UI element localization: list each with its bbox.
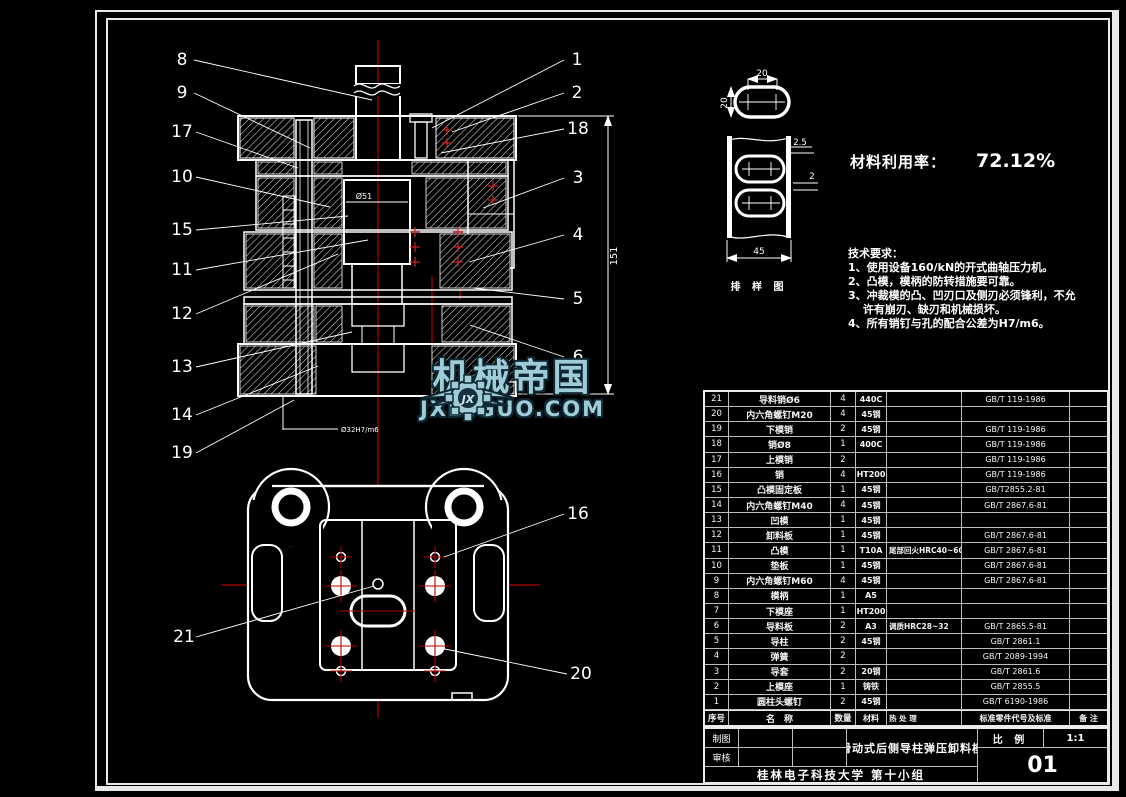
callout-number-19: 19 [171, 443, 193, 463]
check-name-cell [739, 748, 793, 767]
bom-cell: 45钢 [856, 634, 887, 648]
bom-cell: 21 [705, 392, 729, 406]
bom-cell: 45钢 [856, 513, 887, 527]
callout-number-16: 16 [567, 504, 589, 524]
bom-row: 16销4HT200GB/T 119-1986 [705, 468, 1107, 483]
bom-cell [962, 407, 1070, 421]
bom-cell [1070, 559, 1107, 573]
bom-cell [887, 680, 962, 694]
bom-cell: 45钢 [856, 407, 887, 421]
bom-cell: 14 [705, 498, 729, 512]
bom-cell [1070, 513, 1107, 527]
bom-cell: 凸模固定板 [729, 483, 831, 497]
bom-cell: 4 [831, 498, 856, 512]
watermark-monogram: JX [460, 393, 475, 406]
draw-date-cell [793, 729, 847, 748]
bom-cell [1070, 483, 1107, 497]
callout-number-12: 12 [171, 304, 193, 324]
scale-value: 1:1 [1044, 729, 1107, 748]
bom-cell: GB/T 2867.6-81 [962, 528, 1070, 542]
bom-cell [887, 453, 962, 467]
bom-cell [1070, 604, 1107, 618]
sheet-number: 01 [978, 748, 1107, 782]
bom-cell [1070, 437, 1107, 451]
bom-cell [1070, 407, 1107, 421]
bom-cell: 45钢 [856, 498, 887, 512]
bom-cell: 12 [705, 528, 729, 542]
bom-cell: 导料板 [729, 619, 831, 633]
callout-number-4: 4 [573, 225, 584, 245]
dim-punch-diameter: Ø51 [356, 191, 372, 201]
bom-cell: 2 [831, 649, 856, 663]
title-block: 制图 滑动式后侧导柱弹压卸料模 比 例 1:1 审核 01 桂林电子科技大学 第… [703, 727, 1109, 784]
bom-cell [1070, 680, 1107, 694]
bom-cell [1070, 574, 1107, 588]
bom-cell: 上模销 [729, 453, 831, 467]
bom-cell [887, 528, 962, 542]
bom-cell: 下模销 [729, 422, 831, 436]
bom-cell: 2 [831, 695, 856, 709]
strip-caption: 排 样 图 [731, 280, 788, 293]
bom-cell: 45钢 [856, 574, 887, 588]
callout-number-9: 9 [177, 83, 188, 103]
bom-cell: 2 [831, 422, 856, 436]
draw-name-cell [739, 729, 793, 748]
bom-cell [856, 453, 887, 467]
bom-header-cell: 备 注 [1070, 711, 1107, 725]
watermark: JX 机械帝国 JXDIGUO.COM [420, 358, 605, 421]
bom-cell: 2 [705, 680, 729, 694]
bom-cell: 下模座 [729, 604, 831, 618]
bom-cell: 3 [705, 665, 729, 679]
bom-cell [1070, 453, 1107, 467]
tech-line: 3、冲裁模的凸、凹刃口及侧刃必须锋利，不允 [848, 289, 1116, 303]
bom-row: 7下模座1HT200 [705, 604, 1107, 619]
bom-cell: 13 [705, 513, 729, 527]
bom-cell [962, 513, 1070, 527]
bom-header-cell: 热 处 理 [887, 711, 962, 725]
bom-row: 21导料销Ø64440CGB/T 119-1986 [705, 392, 1107, 407]
bom-row: 20内六角螺钉M20445钢 [705, 407, 1107, 422]
bom-cell: HT200 [856, 604, 887, 618]
bom-cell: GB/T 119-1986 [962, 392, 1070, 406]
callout-number-3: 3 [573, 168, 584, 188]
bom-cell [887, 407, 962, 421]
bom-row: 5导柱245钢GB/T 2861.1 [705, 634, 1107, 649]
callout-number-13: 13 [171, 357, 193, 377]
bom-cell: 20 [705, 407, 729, 421]
callout-number-2: 2 [572, 83, 583, 103]
bom-cell: GB/T 2861.6 [962, 665, 1070, 679]
drawing-title: 滑动式后侧导柱弹压卸料模 [847, 729, 978, 767]
bom-cell [887, 437, 962, 451]
bom-cell: GB/T2855.2-81 [962, 483, 1070, 497]
bom-cell: GB/T 2865.5-81 [962, 619, 1070, 633]
bom-cell: 4 [831, 407, 856, 421]
bom-row: 6导料板2A3调质HRC28~32GB/T 2865.5-81 [705, 619, 1107, 634]
bom-cell: 4 [831, 468, 856, 482]
bom-cell [887, 468, 962, 482]
bom-cell [887, 574, 962, 588]
bom-cell: 45钢 [856, 422, 887, 436]
bom-cell [1070, 695, 1107, 709]
dim-height-151: 151 [609, 246, 620, 265]
bom-cell [1070, 649, 1107, 663]
strip-layout [727, 79, 818, 262]
bom-cell [1070, 665, 1107, 679]
material-utilization-value: 72.12% [976, 150, 1055, 172]
scale-label: 比 例 [978, 729, 1044, 748]
callout-number-5: 5 [573, 289, 584, 309]
bom-cell: 卸料板 [729, 528, 831, 542]
bom-cell: 1 [831, 680, 856, 694]
callout-number-15: 15 [171, 220, 193, 240]
callout-number-14: 14 [171, 405, 193, 425]
callout-number-21: 21 [173, 627, 195, 647]
bom-cell: 20钢 [856, 665, 887, 679]
bom-cell: 16 [705, 468, 729, 482]
bom-header-cell: 数量 [831, 711, 856, 725]
bom-cell: GB/T 2867.6-81 [962, 574, 1070, 588]
bom-cell: GB/T 6190-1986 [962, 695, 1070, 709]
bom-header-cell: 标准零件代号及标准 [962, 711, 1070, 725]
bom-cell: 4 [705, 649, 729, 663]
bom-cell: 45钢 [856, 695, 887, 709]
bom-cell: 18 [705, 437, 729, 451]
bom-cell: 1 [831, 528, 856, 542]
tech-line: 4、所有销钉与孔的配合公差为H7/m6。 [848, 317, 1116, 331]
bom-cell [1070, 619, 1107, 633]
check-date-cell [793, 748, 847, 767]
bom-cell: 2 [831, 453, 856, 467]
bom-cell: 1 [831, 589, 856, 603]
bom-cell: 1 [831, 543, 856, 557]
bom-cell [1070, 528, 1107, 542]
bom-cell: 19 [705, 422, 729, 436]
bom-header-row: 序号名 称数量材料热 处 理标准零件代号及标准备 注 [705, 710, 1107, 725]
bom-cell [1070, 392, 1107, 406]
bom-header-cell: 名 称 [729, 711, 831, 725]
bom-cell: 440C [856, 392, 887, 406]
cad-drawing-page: 151 Ø51 Ø32H7/m6 [0, 0, 1126, 797]
bom-cell: 45钢 [856, 528, 887, 542]
bom-cell [1070, 634, 1107, 648]
bom-cell [887, 498, 962, 512]
check-label: 审核 [705, 748, 739, 767]
bom-header-cell: 序号 [705, 711, 729, 725]
bom-cell [887, 422, 962, 436]
callout-number-18: 18 [567, 119, 589, 139]
draw-label: 制图 [705, 729, 739, 748]
bom-cell: 导料销Ø6 [729, 392, 831, 406]
tech-line: 2、凸模，模柄的防转措施要可靠。 [848, 275, 1116, 289]
bom-row: 14内六角螺钉M40445钢GB/T 2867.6-81 [705, 498, 1107, 513]
bom-cell: GB/T 2855.5 [962, 680, 1070, 694]
bom-cell: 11 [705, 543, 729, 557]
bom-cell: 内六角螺钉M40 [729, 498, 831, 512]
bom-cell [887, 392, 962, 406]
bom-row: 17上模销2GB/T 119-1986 [705, 453, 1107, 468]
bom-cell [887, 634, 962, 648]
bom-cell: 6 [705, 619, 729, 633]
bom-cell [1070, 468, 1107, 482]
bom-cell: 2 [831, 619, 856, 633]
bom-cell: 垫板 [729, 559, 831, 573]
bom-cell: GB/T 119-1986 [962, 468, 1070, 482]
bom-cell: 1 [831, 483, 856, 497]
bom-cell: 1 [705, 695, 729, 709]
bom-cell [856, 649, 887, 663]
bom-row: 9内六角螺钉M60445钢GB/T 2867.6-81 [705, 574, 1107, 589]
bom-cell: GB/T 2867.6-81 [962, 543, 1070, 557]
bom-cell: A5 [856, 589, 887, 603]
bom-row: 19下模销245钢GB/T 119-1986 [705, 422, 1107, 437]
bom-cell: 45钢 [856, 559, 887, 573]
bom-cell: 4 [831, 574, 856, 588]
bom-table: 21导料销Ø64440CGB/T 119-198620内六角螺钉M20445钢1… [703, 390, 1109, 727]
bom-row: 11凸模1T10A尾部回火HRC40~60GB/T 2867.6-81 [705, 543, 1107, 558]
strip-dim-width: 45 [753, 247, 764, 257]
bom-row: 13凹模145钢 [705, 513, 1107, 528]
bom-cell: 销Ø8 [729, 437, 831, 451]
bom-cell: GB/T 119-1986 [962, 437, 1070, 451]
bom-cell: 17 [705, 453, 729, 467]
strip-dim-web: 2 [809, 172, 814, 182]
bom-cell: 9 [705, 574, 729, 588]
bom-cell: HT200 [856, 468, 887, 482]
bom-row: 2上模座1铸铁GB/T 2855.5 [705, 680, 1107, 695]
bom-cell: GB/T 2089-1994 [962, 649, 1070, 663]
bom-cell: 弹簧 [729, 649, 831, 663]
callout-number-1: 1 [572, 50, 583, 70]
bom-cell: 销 [729, 468, 831, 482]
bom-cell: 1 [831, 604, 856, 618]
bom-cell: 内六角螺钉M60 [729, 574, 831, 588]
bom-cell [887, 604, 962, 618]
bom-cell: 2 [831, 634, 856, 648]
bom-cell: 导柱 [729, 634, 831, 648]
bom-cell: GB/T 119-1986 [962, 453, 1070, 467]
bom-cell: 1 [831, 513, 856, 527]
bom-cell: A3 [856, 619, 887, 633]
bom-cell [1070, 589, 1107, 603]
bom-header-cell: 材料 [856, 711, 887, 725]
bom-row: 18销Ø81400CGB/T 119-1986 [705, 437, 1107, 452]
bom-cell [887, 649, 962, 663]
callout-number-10: 10 [171, 167, 193, 187]
bom-cell: 上模座 [729, 680, 831, 694]
bom-cell: 调质HRC28~32 [887, 619, 962, 633]
bom-cell: 1 [831, 437, 856, 451]
bom-cell: GB/T 2867.6-81 [962, 498, 1070, 512]
bom-cell: 400C [856, 437, 887, 451]
bom-cell: 圆柱头螺钉 [729, 695, 831, 709]
watermark-logo: JX [420, 358, 516, 436]
strip-dim-top: 20 [756, 69, 768, 79]
plan-view [248, 469, 508, 700]
bom-row: 1圆柱头螺钉245钢GB/T 6190-1986 [705, 695, 1107, 710]
bom-cell [1070, 498, 1107, 512]
bom-cell: GB/T 2861.1 [962, 634, 1070, 648]
section-view [238, 66, 516, 396]
bom-cell: 尾部回火HRC40~60 [887, 543, 962, 557]
bom-cell: 模柄 [729, 589, 831, 603]
bom-cell: 4 [831, 392, 856, 406]
bom-cell: 铸铁 [856, 680, 887, 694]
tech-line: 1、使用设备160/kN的开式曲轴压力机。 [848, 261, 1116, 275]
bom-cell: 10 [705, 559, 729, 573]
bom-cell [887, 589, 962, 603]
dim-fit-tolerance: Ø32H7/m6 [341, 426, 379, 434]
bom-cell: 内六角螺钉M20 [729, 407, 831, 421]
bom-cell [887, 665, 962, 679]
bom-cell [962, 604, 1070, 618]
bom-cell: 凸模 [729, 543, 831, 557]
bom-cell [962, 589, 1070, 603]
callout-number-11: 11 [171, 260, 193, 280]
bom-cell: 2 [831, 665, 856, 679]
bom-cell: 1 [831, 559, 856, 573]
bom-row: 15凸模固定板145钢GB/T2855.2-81 [705, 483, 1107, 498]
bom-cell [1070, 422, 1107, 436]
callout-number-17: 17 [171, 122, 193, 142]
organization: 桂林电子科技大学 第十小组 [705, 767, 978, 782]
bom-cell: 8 [705, 589, 729, 603]
bom-row: 12卸料板145钢GB/T 2867.6-81 [705, 528, 1107, 543]
bom-row: 10垫板145钢GB/T 2867.6-81 [705, 559, 1107, 574]
callout-leader [196, 400, 294, 453]
bom-cell [887, 695, 962, 709]
bom-cell [887, 513, 962, 527]
bom-row: 3导套220钢GB/T 2861.6 [705, 665, 1107, 680]
bom-cell: 15 [705, 483, 729, 497]
bom-cell [1070, 543, 1107, 557]
tech-requirements: 技术要求：1、使用设备160/kN的开式曲轴压力机。2、凸模，模柄的防转措施要可… [848, 247, 1116, 331]
callout-leader [194, 60, 372, 100]
material-utilization-label: 材料利用率： [850, 151, 946, 172]
strip-dim-left: 20 [720, 97, 730, 109]
callout-number-8: 8 [177, 50, 188, 70]
bom-cell: 45钢 [856, 483, 887, 497]
bom-cell: 7 [705, 604, 729, 618]
bom-cell: T10A [856, 543, 887, 557]
strip-dim-pitch: 2.5 [793, 138, 807, 148]
bom-cell: GB/T 119-1986 [962, 422, 1070, 436]
bom-row: 4弹簧2GB/T 2089-1994 [705, 649, 1107, 664]
tech-line: 技术要求： [848, 247, 1116, 261]
material-utilization: 材料利用率： 72.12% [850, 150, 1055, 172]
bom-cell: 5 [705, 634, 729, 648]
tech-line: 许有崩刃、缺刃和机械损坏。 [848, 303, 1116, 317]
bom-cell: 凹模 [729, 513, 831, 527]
bom-row: 8模柄1A5 [705, 589, 1107, 604]
bom-cell: GB/T 2867.6-81 [962, 559, 1070, 573]
callout-number-20: 20 [570, 664, 592, 684]
bom-cell [887, 483, 962, 497]
bom-cell: 导套 [729, 665, 831, 679]
bom-cell [887, 559, 962, 573]
